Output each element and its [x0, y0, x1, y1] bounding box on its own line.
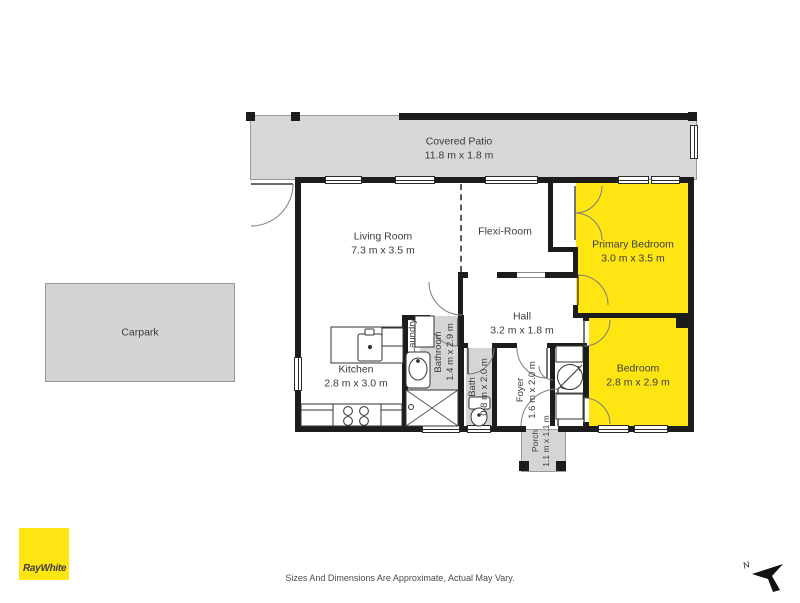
room-dims: 1.4 m x 2.9 m — [445, 323, 457, 381]
shower-icon — [406, 390, 458, 426]
room-label-porch: Porch 1.1 m x 1.1 m — [530, 415, 552, 467]
room-label-living-room: Living Room 7.3 m x 3.5 m — [351, 231, 415, 258]
room-label-bath: Bath 0.8 m x 2.0 m — [467, 358, 491, 416]
room-dims: 1.6 m x 2.0 m — [527, 361, 539, 419]
room-dims: 11.8 m x 1.8 m — [425, 149, 494, 163]
raywhite-logo: RayWhite — [19, 528, 69, 580]
room-name: Hall — [490, 311, 554, 325]
room-label-laundry: Laundry — [407, 319, 419, 353]
kitchen-island-icon — [331, 327, 403, 363]
basin-icon — [406, 352, 430, 388]
room-label-bathroom: Bathroom 1.4 m x 2.9 m — [433, 323, 457, 381]
room-name: Porch — [530, 415, 541, 467]
wardrobe-door-arc — [575, 186, 602, 213]
room-name: Bedroom — [606, 363, 670, 377]
room-name: Carpark — [121, 326, 158, 340]
room-name: Flexi-Room — [478, 225, 532, 239]
room-dims: 3.0 m x 3.5 m — [592, 252, 674, 266]
disclaimer-text: Sizes And Dimensions Are Approximate, Ac… — [285, 573, 514, 583]
bedroom-door-arc — [584, 320, 610, 346]
room-dims: 0.8 m x 2.0 m — [479, 358, 491, 416]
north-arrow-icon — [735, 548, 790, 598]
room-name: Kitchen — [324, 364, 388, 378]
room-name: Primary Bedroom — [592, 239, 674, 253]
room-label-carpark: Carpark — [121, 326, 158, 340]
room-name: Foyer — [515, 361, 527, 419]
room-label-covered-patio: Covered Patio 11.8 m x 1.8 m — [425, 136, 494, 163]
room-label-kitchen: Kitchen 2.8 m x 3.0 m — [324, 364, 388, 391]
room-dims: 3.2 m x 1.8 m — [490, 324, 554, 338]
room-dims: 1.1 m x 1.1 m — [541, 415, 552, 467]
room-label-foyer: Foyer 1.6 m x 2.0 m — [515, 361, 539, 419]
north-indicator: N — [735, 548, 790, 598]
floorplan: Covered Patio 11.8 m x 1.8 m Living Room… — [0, 0, 800, 600]
stove-icon — [301, 404, 402, 426]
room-name: Bath — [467, 358, 479, 416]
room-dims: 2.8 m x 2.9 m — [606, 376, 670, 390]
primary-bedroom-door-arc — [578, 275, 608, 305]
room-name: Covered Patio — [425, 136, 494, 150]
patio-door-arc — [251, 184, 293, 226]
bedroom-robe-door-arc — [584, 398, 610, 424]
room-name: Laundry — [407, 319, 419, 353]
room-name: Bathroom — [433, 323, 445, 381]
room-dims: 2.8 m x 3.0 m — [324, 377, 388, 391]
room-name: Living Room — [351, 231, 415, 245]
room-label-bedroom: Bedroom 2.8 m x 2.9 m — [606, 363, 670, 390]
raywhite-logo-text: RayWhite — [23, 563, 66, 574]
room-label-hall: Hall 3.2 m x 1.8 m — [490, 311, 554, 338]
room-label-flexi-room: Flexi-Room — [478, 225, 532, 239]
room-dims: 7.3 m x 3.5 m — [351, 244, 415, 258]
water-heater-icon — [555, 346, 583, 419]
wardrobe-door-arc — [575, 213, 602, 240]
room-label-primary-bedroom: Primary Bedroom 3.0 m x 3.5 m — [592, 239, 674, 266]
hall-door-arc — [429, 282, 462, 315]
